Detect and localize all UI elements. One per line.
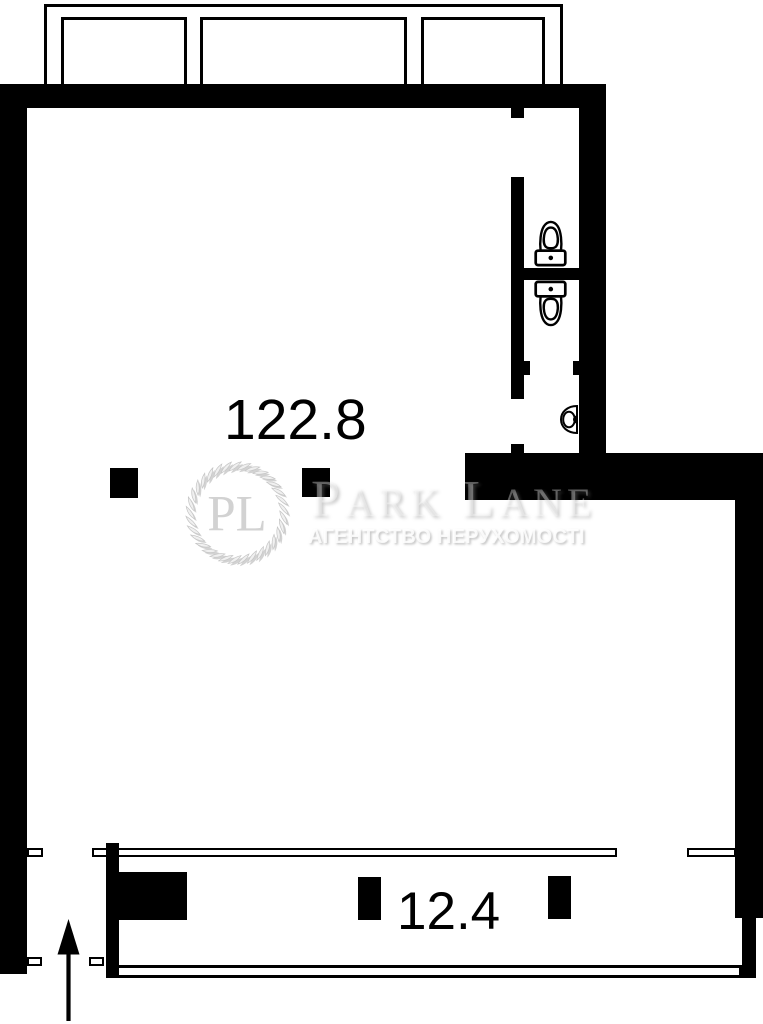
svg-text:PL: PL xyxy=(207,486,266,542)
